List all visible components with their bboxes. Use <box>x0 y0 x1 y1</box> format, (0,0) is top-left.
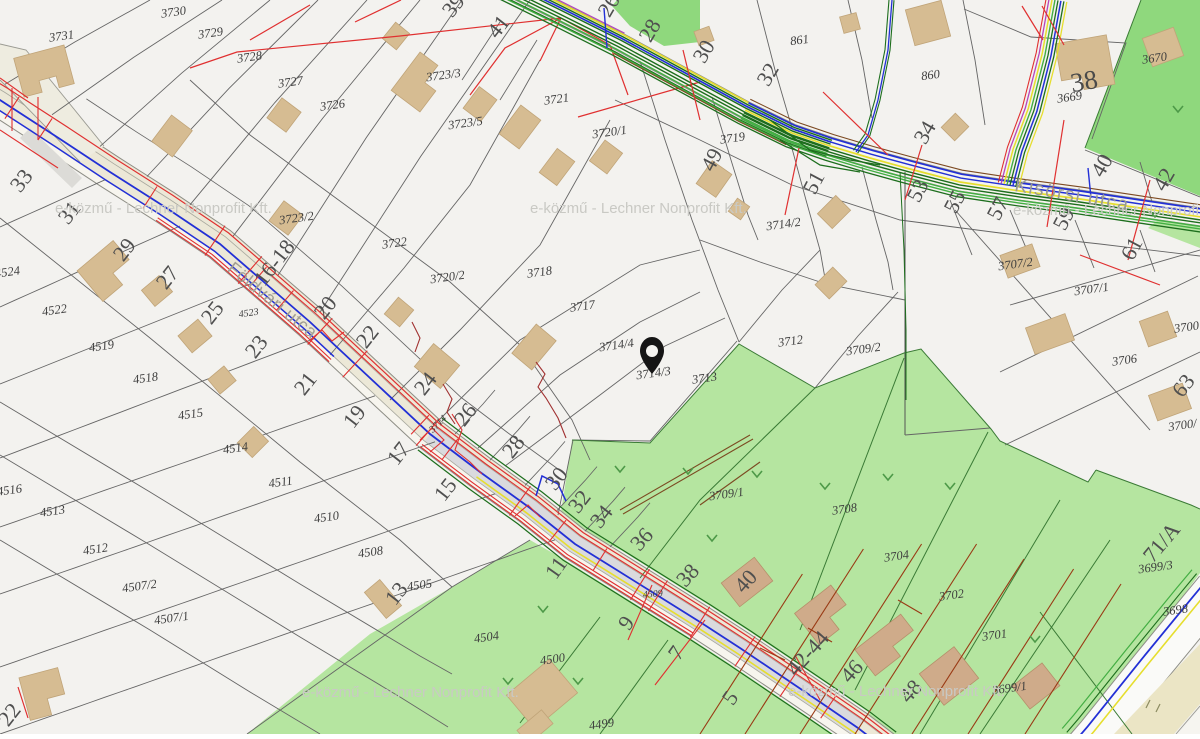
svg-text:e-közmű - Lechner Nonprofit Kf: e-közmű - Lechner Nonprofit Kft. <box>530 200 747 217</box>
svg-text:e-közmű - Lechner Nonprofit Kf: e-közmű - Lechner Nonprofit Kft. <box>302 684 519 701</box>
svg-text:e-közmű - Lechner Nonprofit Kf: e-közmű - Lechner Nonprofit Kft. <box>788 683 1005 700</box>
svg-text:4509: 4509 <box>642 588 663 601</box>
svg-text:860: 860 <box>920 67 941 84</box>
svg-text:861: 861 <box>789 32 810 48</box>
svg-text:e-közmű - Lechner Nonprofit Kf: e-közmű - Lechner Nonprofit Kft. <box>55 200 272 217</box>
svg-text:38: 38 <box>1068 64 1100 98</box>
svg-text:e-közmű - Lechner Nonprofit Kf: e-közmű - Lechner Nonprofit Kft. <box>1013 202 1200 219</box>
